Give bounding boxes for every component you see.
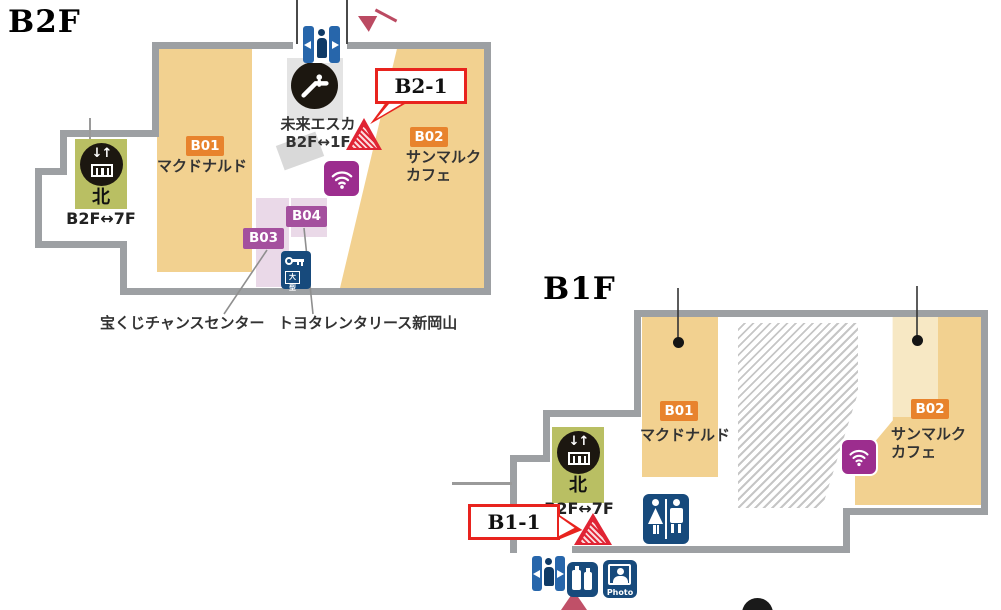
gate-person-body xyxy=(544,567,554,586)
shop-name-saintmarc-line1: サンマルク xyxy=(891,426,979,443)
elevator-floor-range: B2F↔7F xyxy=(56,209,146,228)
shop-name-lottery: 宝くじチャンスセンター xyxy=(100,315,275,332)
wifi-glyph xyxy=(329,166,355,192)
bottle xyxy=(572,570,581,590)
elevator-icon: ↓↑ xyxy=(80,143,123,186)
photo-booth-icon: Photo xyxy=(603,560,637,598)
woman-figure-dress xyxy=(648,508,663,524)
bottle-cap xyxy=(575,566,579,570)
gate-person-head xyxy=(318,29,325,36)
shop-name-mcdonalds: マクドナルド xyxy=(157,158,267,175)
wifi-icon xyxy=(840,438,878,476)
callout-b2-1: B2-1 xyxy=(375,68,467,104)
elevator-person xyxy=(573,456,576,463)
photo-person-shoulders xyxy=(613,576,628,583)
escalator-glyph xyxy=(299,70,331,102)
restroom-divider xyxy=(665,499,667,539)
woman-figure-head xyxy=(652,499,659,506)
man-figure-head xyxy=(673,499,680,506)
gate-person-body xyxy=(317,38,327,58)
coin-locker-icon: 大型 xyxy=(281,251,311,289)
gate-right-arrow-icon xyxy=(557,570,564,578)
shop-name-saintmarc-line2: カフェ xyxy=(891,444,979,461)
ticket-gate-icon xyxy=(303,26,340,63)
elevator-person xyxy=(107,168,110,175)
wifi-glyph xyxy=(847,445,871,469)
elevator-person xyxy=(584,456,587,463)
shop-code-b03: B03 xyxy=(243,228,284,249)
elevator-person xyxy=(101,168,104,175)
elevator-arrows-icon: ↓↑ xyxy=(557,434,600,449)
shop-name-mcdonalds: マクドナルド xyxy=(640,427,750,444)
shop-code-b01: B01 xyxy=(186,136,224,156)
shop-code-b02: B02 xyxy=(911,399,949,419)
locker-size-label: 大型 xyxy=(285,271,300,284)
shop-code-b01: B01 xyxy=(660,401,698,421)
photo-label: Photo xyxy=(603,588,637,597)
gate-right-arrow-icon xyxy=(332,41,339,49)
elevator-car xyxy=(568,452,590,465)
bottle xyxy=(584,572,592,590)
vending-machine-icon xyxy=(567,562,598,597)
bottle-cap xyxy=(586,568,590,572)
elevator-person xyxy=(96,168,99,175)
shop-code-b04: B04 xyxy=(286,206,327,227)
gate-left-arrow-icon xyxy=(304,41,311,49)
gate-left-arrow-icon xyxy=(533,570,540,578)
shop-code-b02: B02 xyxy=(410,127,448,147)
b1f-floor-title: B1F xyxy=(543,271,616,307)
ticket-gate-icon xyxy=(532,556,565,591)
wifi-icon xyxy=(322,159,361,198)
man-figure-body xyxy=(670,508,683,523)
elevator-icon: ↓↑ xyxy=(557,431,600,474)
figure-leg xyxy=(657,525,660,534)
shop-name-saintmarc-line2: カフェ xyxy=(406,167,494,184)
photo-person-head xyxy=(617,568,624,575)
key-tooth xyxy=(297,262,299,265)
elevator-car xyxy=(91,164,113,177)
elevator-arrows-icon: ↓↑ xyxy=(80,146,123,161)
elevator-person xyxy=(578,456,581,463)
gate-person-head xyxy=(545,558,552,565)
shop-name-saintmarc-line1: サンマルク xyxy=(406,149,494,166)
figure-leg xyxy=(671,524,674,533)
escalator-icon xyxy=(291,62,338,109)
elevator-name-north: 北 xyxy=(75,183,127,209)
floor-map: B2F 未来エスカ B2F↔1F B2-1 xyxy=(0,0,1001,610)
callout-b1-1: B1-1 xyxy=(468,504,560,540)
shop-name-toyota-rental: トヨタレンタリース新岡山 xyxy=(278,315,473,332)
elevator-name-north: 北 xyxy=(552,471,604,497)
b2f-floor-title: B2F xyxy=(8,4,81,40)
figure-leg xyxy=(678,524,681,533)
map-pin-dot xyxy=(673,337,684,348)
figure-leg xyxy=(653,525,656,534)
map-pin-dot xyxy=(912,335,923,346)
key-tooth xyxy=(301,262,303,266)
restroom-icon xyxy=(643,494,689,544)
